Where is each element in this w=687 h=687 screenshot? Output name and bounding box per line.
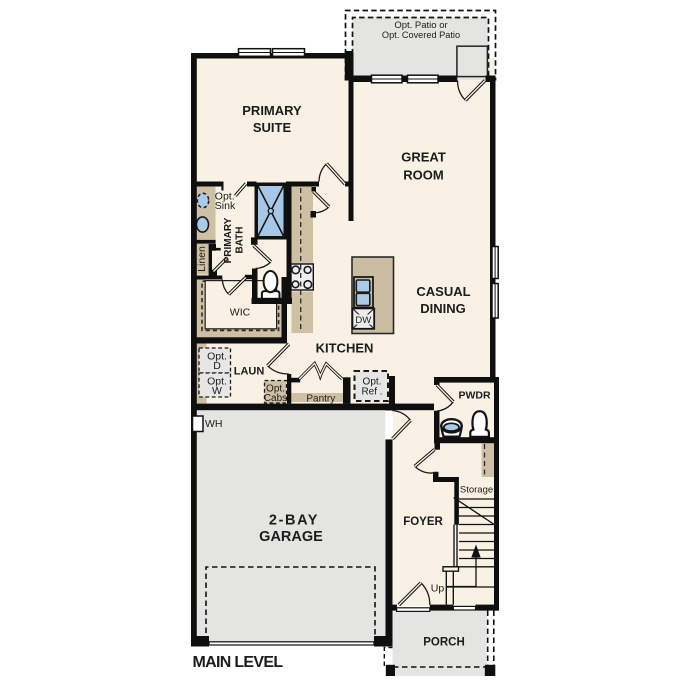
svg-text:Pantry: Pantry bbox=[306, 393, 335, 404]
svg-text:SUITE: SUITE bbox=[253, 120, 292, 135]
svg-text:Storage: Storage bbox=[460, 485, 493, 496]
svg-text:DW: DW bbox=[355, 315, 371, 326]
svg-text:CASUAL: CASUAL bbox=[416, 284, 470, 299]
svg-text:PORCH: PORCH bbox=[423, 636, 465, 648]
svg-text:DINING: DINING bbox=[420, 301, 466, 316]
svg-text:D: D bbox=[213, 360, 221, 372]
svg-text:W: W bbox=[212, 385, 222, 397]
svg-text:LAUN: LAUN bbox=[234, 366, 265, 378]
svg-text:FOYER: FOYER bbox=[403, 516, 443, 528]
svg-text:Ref .: Ref . bbox=[361, 386, 382, 397]
svg-text:ROOM: ROOM bbox=[403, 167, 443, 182]
svg-text:PWDR: PWDR bbox=[458, 390, 490, 402]
svg-text:Cabs: Cabs bbox=[264, 393, 287, 404]
svg-text:GREAT: GREAT bbox=[401, 149, 446, 164]
svg-text:BATH: BATH bbox=[235, 226, 246, 253]
svg-text:MAIN LEVEL: MAIN LEVEL bbox=[193, 654, 284, 671]
svg-text:2-BAY: 2-BAY bbox=[269, 513, 319, 529]
svg-text:GARAGE: GARAGE bbox=[259, 529, 323, 545]
svg-text:Opt. Covered Patio: Opt. Covered Patio bbox=[382, 30, 460, 40]
svg-text:KITCHEN: KITCHEN bbox=[316, 340, 374, 355]
svg-text:Up: Up bbox=[431, 583, 445, 595]
svg-text:Linen: Linen bbox=[196, 246, 208, 272]
svg-text:PRIMARY: PRIMARY bbox=[242, 103, 302, 118]
svg-text:WH: WH bbox=[205, 418, 223, 430]
svg-text:PRIMARY: PRIMARY bbox=[223, 217, 234, 263]
svg-text:WIC: WIC bbox=[230, 306, 251, 318]
svg-text:Sink: Sink bbox=[215, 200, 236, 212]
